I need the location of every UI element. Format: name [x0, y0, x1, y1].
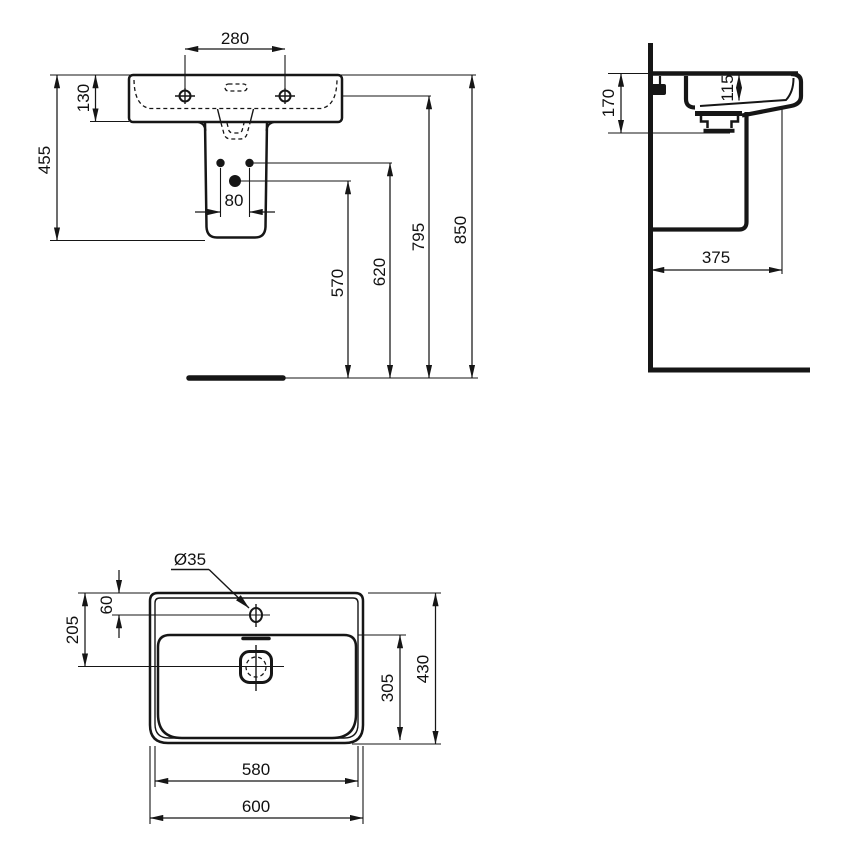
dim-580-label: 580 — [242, 760, 270, 779]
dim-035-label: Ø35 — [174, 550, 206, 569]
fixing-bolt-section — [651, 84, 666, 95]
dim-620-label: 620 — [370, 258, 389, 286]
dim-455-label: 455 — [35, 146, 54, 174]
dim-850-label: 850 — [451, 216, 470, 244]
basin-outline — [129, 75, 342, 122]
dim-795-label: 795 — [409, 223, 428, 251]
dim-570-label: 570 — [328, 269, 347, 297]
fixing-hole-left — [216, 159, 224, 167]
dim-375-label: 375 — [702, 248, 730, 267]
dim-280-label: 280 — [221, 29, 249, 48]
dim-305-label: 305 — [378, 674, 397, 702]
technical-drawing-page: 280 130 455 80 570 — [0, 0, 850, 850]
dimension-drawing: 280 130 455 80 570 — [0, 0, 850, 850]
dim-600-label: 600 — [242, 797, 270, 816]
dim-205-label: 205 — [63, 616, 82, 644]
dim-60-label: 60 — [97, 596, 116, 615]
dim-130-label: 130 — [74, 84, 93, 112]
dim-170-label: 170 — [599, 89, 618, 117]
dim-430-label: 430 — [414, 655, 433, 683]
page-background — [0, 0, 850, 850]
dimension-bowl-depth-115: 115 — [718, 74, 739, 101]
dim-115-label: 115 — [718, 74, 737, 101]
dim-80-label: 80 — [225, 191, 244, 210]
